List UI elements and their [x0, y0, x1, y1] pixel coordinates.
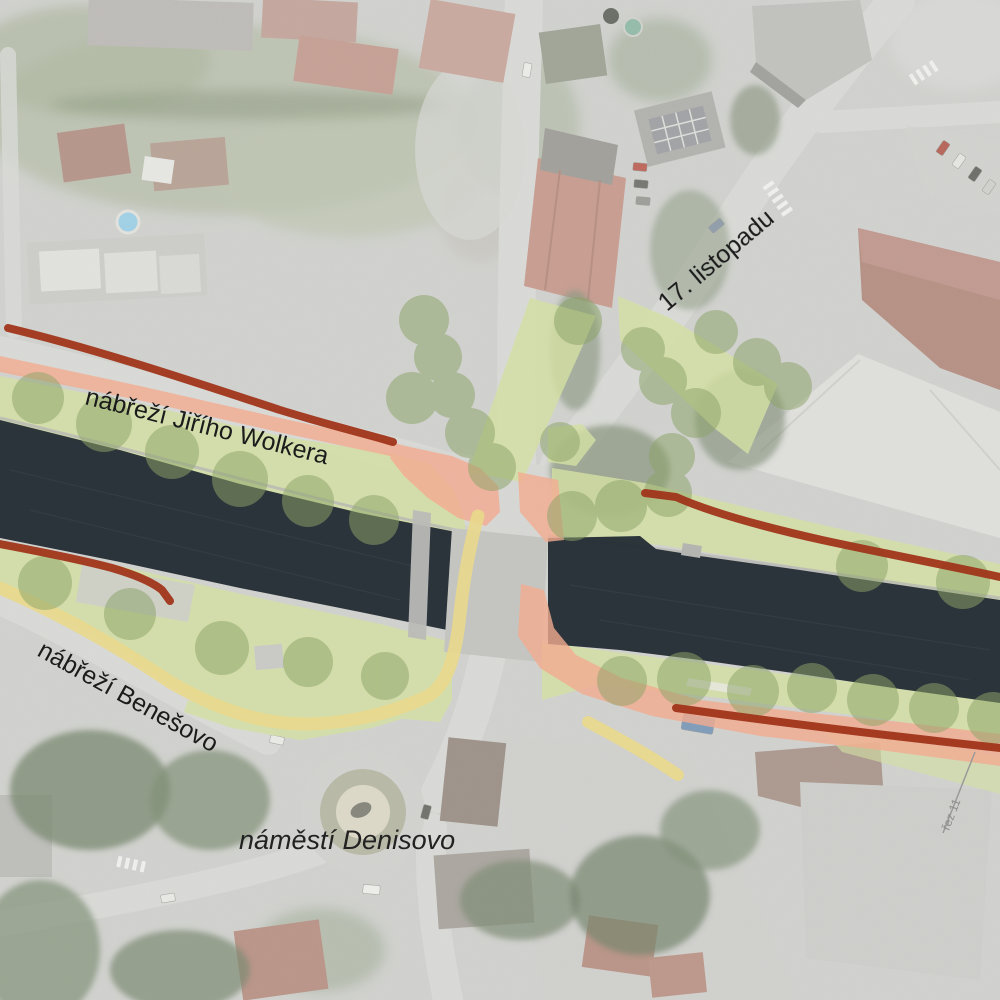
tree-canopy-circle	[12, 372, 64, 424]
tree-canopy-circle	[361, 652, 409, 700]
tree-canopy-circle	[283, 637, 333, 687]
tree-canopy-circle	[764, 362, 812, 410]
tree-canopy-circle	[657, 652, 711, 706]
tree-canopy-circle	[694, 310, 738, 354]
tree-canopy-circle	[540, 422, 580, 462]
map-canvas: nábřeží Jiřího Wolkera 17. listopadu náb…	[0, 0, 1000, 1000]
tree-canopy-circle	[282, 475, 334, 527]
tree-canopy-circle	[787, 663, 837, 713]
tree-canopy-circle	[349, 495, 399, 545]
aerial-plan-map: nábřeží Jiřího Wolkera 17. listopadu náb…	[0, 0, 1000, 1000]
tree-canopy-circle	[597, 656, 647, 706]
tree-canopy-circle	[547, 491, 597, 541]
tree-canopy-circle	[847, 674, 899, 726]
tree-canopy-circle	[212, 451, 268, 507]
tree-canopy-circle	[671, 388, 721, 438]
label-square-namesti-denisovo: náměstí Denisovo	[239, 825, 455, 855]
tree-canopy-circle	[18, 556, 72, 610]
paved-pad	[254, 644, 284, 670]
tree-canopy-circle	[909, 683, 959, 733]
tree-canopy-circle	[468, 443, 516, 491]
tree-canopy-circle	[195, 621, 249, 675]
tree-canopy-circle	[104, 588, 156, 640]
tree-canopy-circle	[595, 480, 647, 532]
tree-canopy-circle	[554, 297, 602, 345]
tree-canopy-circle	[727, 665, 779, 717]
